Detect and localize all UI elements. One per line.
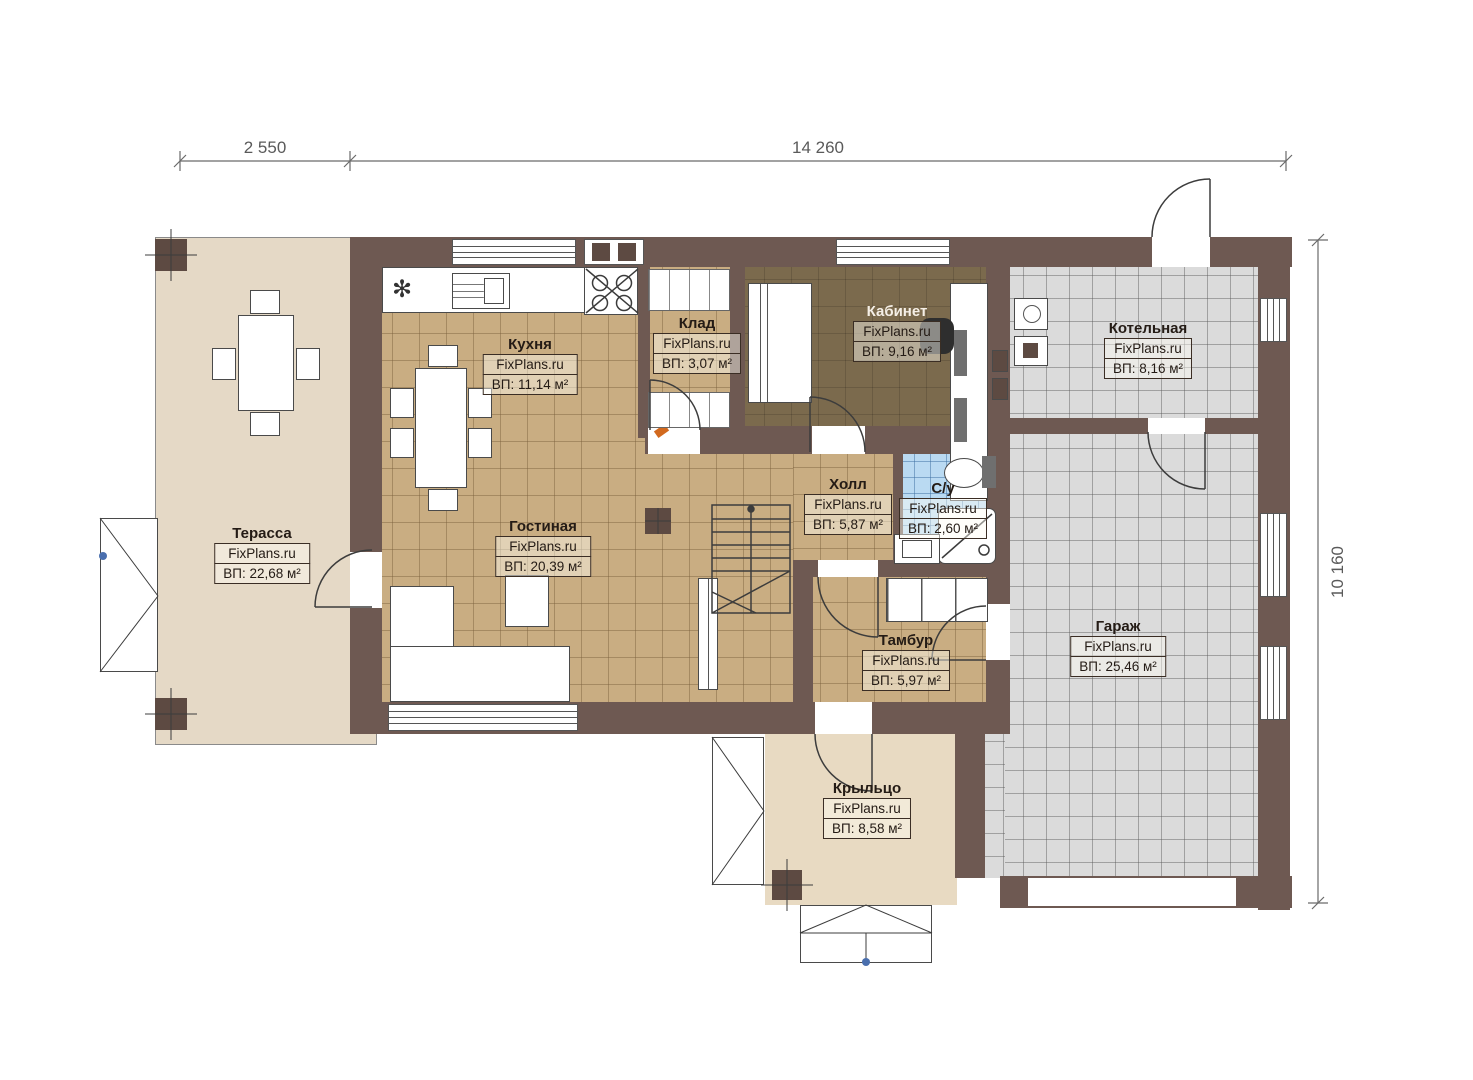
door-opening-terrace <box>350 552 382 608</box>
sink-basin-icon <box>484 278 504 304</box>
room-area: ВП: 22,68 м² <box>214 563 310 584</box>
room-name: Терасса <box>214 525 310 542</box>
door-opening-office <box>812 426 865 454</box>
chair <box>428 489 458 511</box>
coffee-table <box>505 575 549 627</box>
wall-porch-garage <box>955 718 985 878</box>
vent-shaft-icon <box>618 243 636 261</box>
garage-gate-opening <box>1028 878 1236 906</box>
room-area: ВП: 5,87 м² <box>804 514 892 535</box>
room-name: Крыльцо <box>823 780 911 797</box>
chair <box>250 412 280 436</box>
washer-drum-icon <box>1023 343 1038 358</box>
fridge-snowflake-icon: ✻ <box>392 278 412 302</box>
room-area: ВП: 8,16 м² <box>1104 358 1192 379</box>
chair <box>468 428 492 458</box>
storage-shelf <box>648 269 730 311</box>
door-opening-boiler-garage <box>1148 418 1205 434</box>
boiler-unit <box>992 350 1008 372</box>
bath-sink-basin-icon <box>902 540 932 558</box>
office-wardrobe <box>748 283 812 403</box>
terrace-column <box>155 698 187 730</box>
room-brand: FixPlans.ru <box>495 536 591 557</box>
room-area: ВП: 5,97 м² <box>862 670 950 691</box>
room-brand: FixPlans.ru <box>823 798 911 819</box>
room-name: Кухня <box>483 336 578 353</box>
room-area: ВП: 8,58 м² <box>823 818 911 839</box>
door-opening-boiler-exterior <box>1152 237 1210 267</box>
garage-window-2 <box>1260 646 1287 720</box>
room-brand: FixPlans.ru <box>483 354 578 375</box>
room-label-tambour: Тамбур FixPlans.ru ВП: 5,97 м² <box>862 632 950 691</box>
room-name: Кабинет <box>853 303 941 320</box>
living-window <box>388 704 578 731</box>
vent-shaft-icon <box>592 243 610 261</box>
living-column <box>645 508 671 534</box>
garage-window-1 <box>1260 513 1287 597</box>
room-area: ВП: 3,07 м² <box>653 353 741 374</box>
sofa <box>390 646 570 702</box>
kitchen-table <box>415 368 467 488</box>
room-area: ВП: 2,60 м² <box>899 518 987 539</box>
chair <box>296 348 320 380</box>
terrace-column <box>155 239 187 271</box>
room-name: Котельная <box>1104 320 1192 337</box>
chair <box>212 348 236 380</box>
pc-tower-icon <box>954 398 967 442</box>
room-name: Гостиная <box>495 518 591 535</box>
room-brand: FixPlans.ru <box>862 650 950 671</box>
room-area: ВП: 25,46 м² <box>1070 656 1166 677</box>
tambour-wardrobe <box>886 578 988 622</box>
room-name: С/у <box>899 480 987 497</box>
room-label-garage: Гараж FixPlans.ru ВП: 25,46 м² <box>1070 618 1166 677</box>
sink-bowl-icon <box>1023 305 1041 323</box>
wall-living-tambour <box>793 560 813 734</box>
porch-front-steps <box>800 905 932 963</box>
terrace-table <box>238 315 294 411</box>
room-brand: FixPlans.ru <box>804 494 892 515</box>
room-name: Клад <box>653 315 741 332</box>
room-label-kitchen: Кухня FixPlans.ru ВП: 11,14 м² <box>483 336 578 395</box>
wall-left <box>350 237 382 734</box>
chair <box>390 428 414 458</box>
terrace-steps <box>100 518 158 672</box>
room-label-terrace: Терасса FixPlans.ru ВП: 22,68 м² <box>214 525 310 584</box>
chair <box>390 388 414 418</box>
boiler-exterior-door-arc-icon <box>1152 179 1210 237</box>
room-label-storage: Клад FixPlans.ru ВП: 3,07 м² <box>653 315 741 374</box>
stove <box>584 267 638 315</box>
boiler-window <box>1260 298 1287 342</box>
room-label-porch: Крыльцо FixPlans.ru ВП: 8,58 м² <box>823 780 911 839</box>
room-brand: FixPlans.ru <box>1070 636 1166 657</box>
wall-boiler-garage <box>1000 418 1258 434</box>
room-brand: FixPlans.ru <box>899 498 987 519</box>
tv-console <box>698 578 718 690</box>
floor-plan: ✻ <box>0 0 1473 1080</box>
office-window <box>836 239 950 265</box>
room-label-wc: С/у FixPlans.ru ВП: 2,60 м² <box>899 480 987 539</box>
kitchen-window <box>452 239 576 265</box>
door-opening-tambour-garage <box>986 604 1010 660</box>
door-opening-tambour <box>818 560 878 577</box>
door-opening-porch <box>815 702 872 734</box>
room-label-boiler: Котельная FixPlans.ru ВП: 8,16 м² <box>1104 320 1192 379</box>
room-label-living: Гостиная FixPlans.ru ВП: 20,39 м² <box>495 518 591 577</box>
room-name: Холл <box>804 476 892 493</box>
storage-shelf <box>648 392 730 428</box>
boiler-unit <box>992 378 1008 400</box>
room-label-hall: Холл FixPlans.ru ВП: 5,87 м² <box>804 476 892 535</box>
room-area: ВП: 11,14 м² <box>483 374 578 395</box>
room-label-office: Кабинет FixPlans.ru ВП: 9,16 м² <box>853 303 941 362</box>
room-name: Гараж <box>1070 618 1166 635</box>
room-area: ВП: 20,39 м² <box>495 556 591 577</box>
chair <box>250 290 280 314</box>
dimension-top-left: 2 550 <box>244 138 287 158</box>
room-brand: FixPlans.ru <box>214 543 310 564</box>
room-brand: FixPlans.ru <box>1104 338 1192 359</box>
room-area: ВП: 9,16 м² <box>853 341 941 362</box>
porch-column <box>772 870 802 900</box>
dimension-right: 10 160 <box>1328 546 1348 598</box>
chair <box>428 345 458 367</box>
monitor-icon <box>954 330 967 376</box>
porch-side-steps <box>712 737 764 885</box>
room-brand: FixPlans.ru <box>653 333 741 354</box>
room-brand: FixPlans.ru <box>853 321 941 342</box>
dimension-top-right: 14 260 <box>792 138 844 158</box>
room-name: Тамбур <box>862 632 950 649</box>
